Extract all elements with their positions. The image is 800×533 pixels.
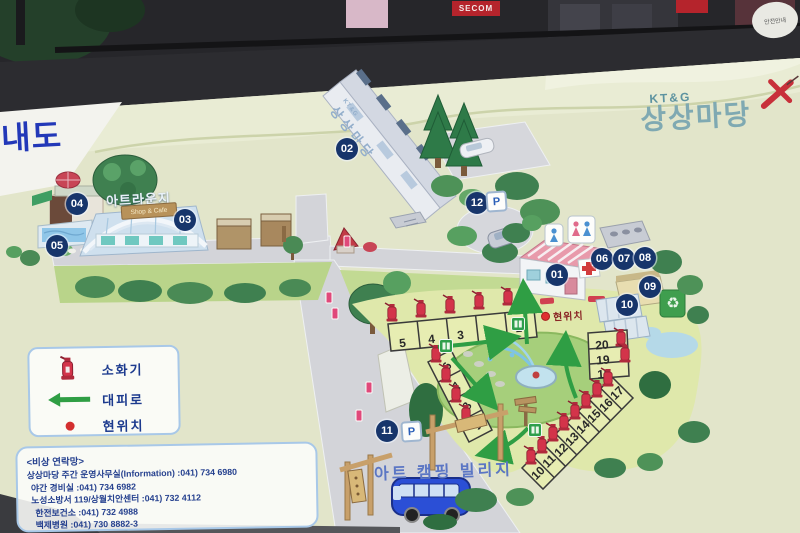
ktng-sangsangmadang-logo: KT&G 상상마당 — [639, 84, 800, 135]
current-location-label: 현위치 — [541, 307, 584, 324]
legend-extinguisher-row: 소화기 — [35, 351, 172, 387]
legend-location-label: 현위치 — [102, 415, 144, 435]
location-dot-icon — [37, 421, 103, 431]
recycle-icon: ♻ — [662, 292, 684, 314]
board-title: 내도 — [0, 110, 63, 159]
legend-evacuation-row: 대피로 — [36, 385, 172, 413]
marker-01: 01 — [546, 264, 568, 286]
parking-sign-icon: P — [400, 420, 422, 442]
marker-10: 10 — [616, 294, 638, 316]
dragonfly-icon — [756, 74, 800, 112]
legend-box: 소화기 대피로 현위치 — [27, 345, 181, 438]
marker-09: 09 — [639, 276, 661, 298]
current-location-dot-icon — [541, 312, 550, 321]
marker-08: 08 — [634, 247, 656, 269]
marker-11: 11 — [376, 420, 398, 442]
emergency-contact-box: <비상 연락망> 상상마당 주간 운영사무실(Information) :041… — [15, 441, 318, 532]
marker-07: 07 — [613, 248, 635, 270]
signboard-photo: 5 4 3 2 1 6 7 8 9 10 11 12 13 14 15 16 1… — [0, 0, 800, 533]
parking-sign-icon: P — [485, 190, 507, 212]
fire-extinguisher-icon — [35, 354, 102, 385]
marker-04: 04 — [66, 193, 88, 215]
art-camping-village-label: 아트 캠핑 빌리지 — [374, 456, 514, 485]
site-number: 19 — [596, 353, 611, 368]
legend-location-row: 현위치 — [36, 411, 172, 439]
marker-05: 05 — [46, 235, 68, 257]
site-number: 20 — [595, 338, 610, 353]
legend-extinguisher-label: 소화기 — [101, 359, 143, 379]
current-location-text: 현위치 — [553, 307, 584, 324]
marker-03: 03 — [174, 209, 196, 231]
marker-02: 02 — [336, 138, 358, 160]
marker-06: 06 — [591, 248, 613, 270]
secom-sign: SECOM — [452, 1, 500, 16]
legend-evacuation-label: 대피로 — [102, 389, 144, 409]
evacuation-arrow-icon — [36, 391, 102, 408]
